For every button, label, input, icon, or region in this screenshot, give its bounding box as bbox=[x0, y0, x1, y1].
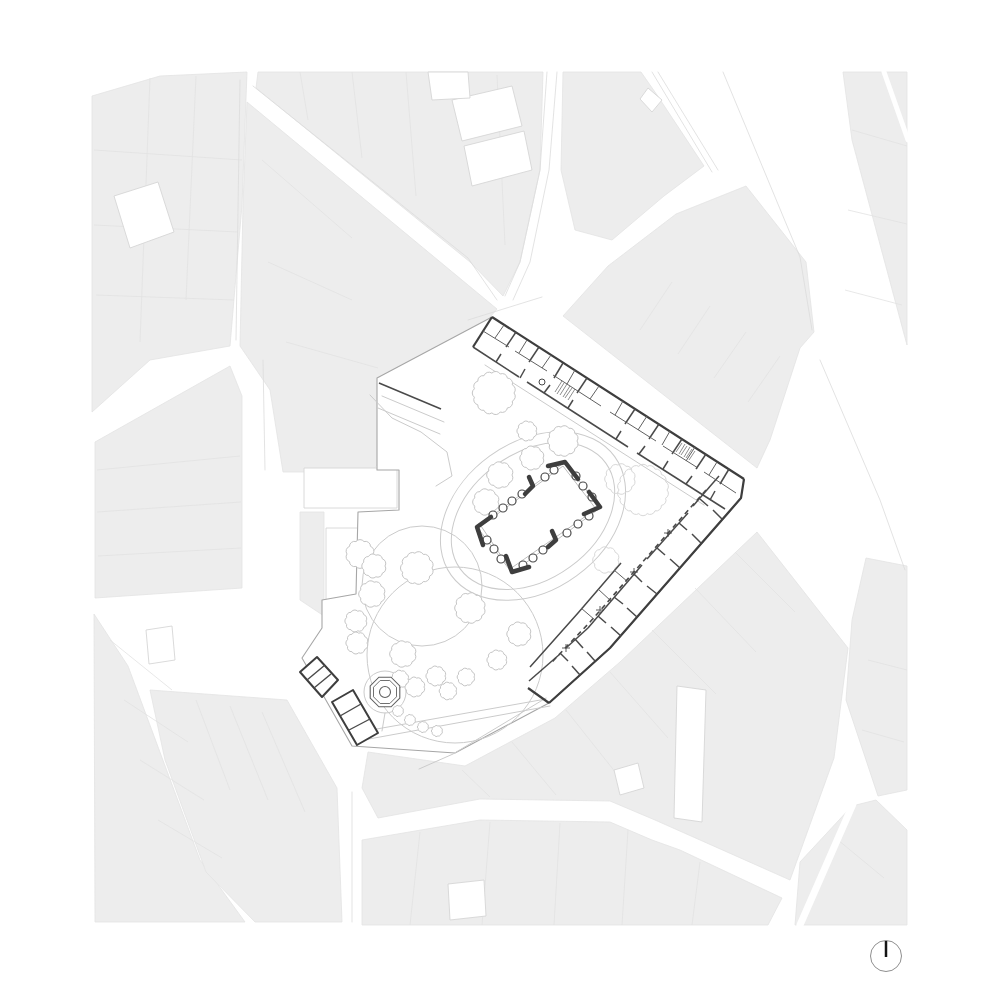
site-plan-canvas bbox=[0, 0, 1000, 1000]
tree bbox=[346, 632, 368, 654]
context-building-white bbox=[674, 686, 706, 822]
tree bbox=[520, 446, 544, 470]
context-block bbox=[846, 558, 907, 796]
tree bbox=[417, 721, 428, 732]
tree bbox=[359, 581, 385, 607]
fountain-octagon bbox=[370, 677, 400, 707]
cloister-column bbox=[579, 482, 587, 490]
context-block bbox=[95, 366, 242, 598]
cloister-column bbox=[563, 529, 571, 537]
context-building-white bbox=[146, 626, 175, 664]
context-building-white bbox=[448, 880, 486, 920]
context-building-white bbox=[304, 468, 397, 508]
site-plan-page bbox=[0, 0, 1000, 1000]
cloister-column bbox=[541, 473, 549, 481]
north-arrow-icon bbox=[871, 941, 902, 972]
cloister-column bbox=[574, 520, 582, 528]
cloister-column bbox=[490, 545, 498, 553]
tree bbox=[517, 421, 537, 441]
tree bbox=[345, 610, 367, 632]
tree bbox=[390, 641, 416, 667]
tree bbox=[472, 371, 515, 414]
tree bbox=[404, 714, 415, 725]
tree bbox=[362, 554, 386, 578]
interior-column bbox=[539, 379, 545, 385]
cloister-column bbox=[529, 554, 537, 562]
fountain-octagon-outer bbox=[370, 677, 400, 707]
context-block bbox=[300, 512, 324, 616]
cloister-column bbox=[508, 497, 516, 505]
tree bbox=[507, 622, 531, 646]
tree bbox=[548, 426, 578, 457]
context-block bbox=[92, 72, 247, 412]
street-edge-line bbox=[820, 360, 905, 570]
tree bbox=[392, 705, 403, 716]
tree bbox=[455, 593, 485, 624]
tree bbox=[487, 462, 513, 488]
tree bbox=[439, 682, 456, 700]
tree bbox=[487, 650, 507, 670]
context-building-white bbox=[428, 72, 470, 100]
tree bbox=[431, 725, 442, 736]
cloister-column bbox=[499, 504, 507, 512]
tree bbox=[426, 666, 446, 686]
tree bbox=[457, 668, 474, 686]
